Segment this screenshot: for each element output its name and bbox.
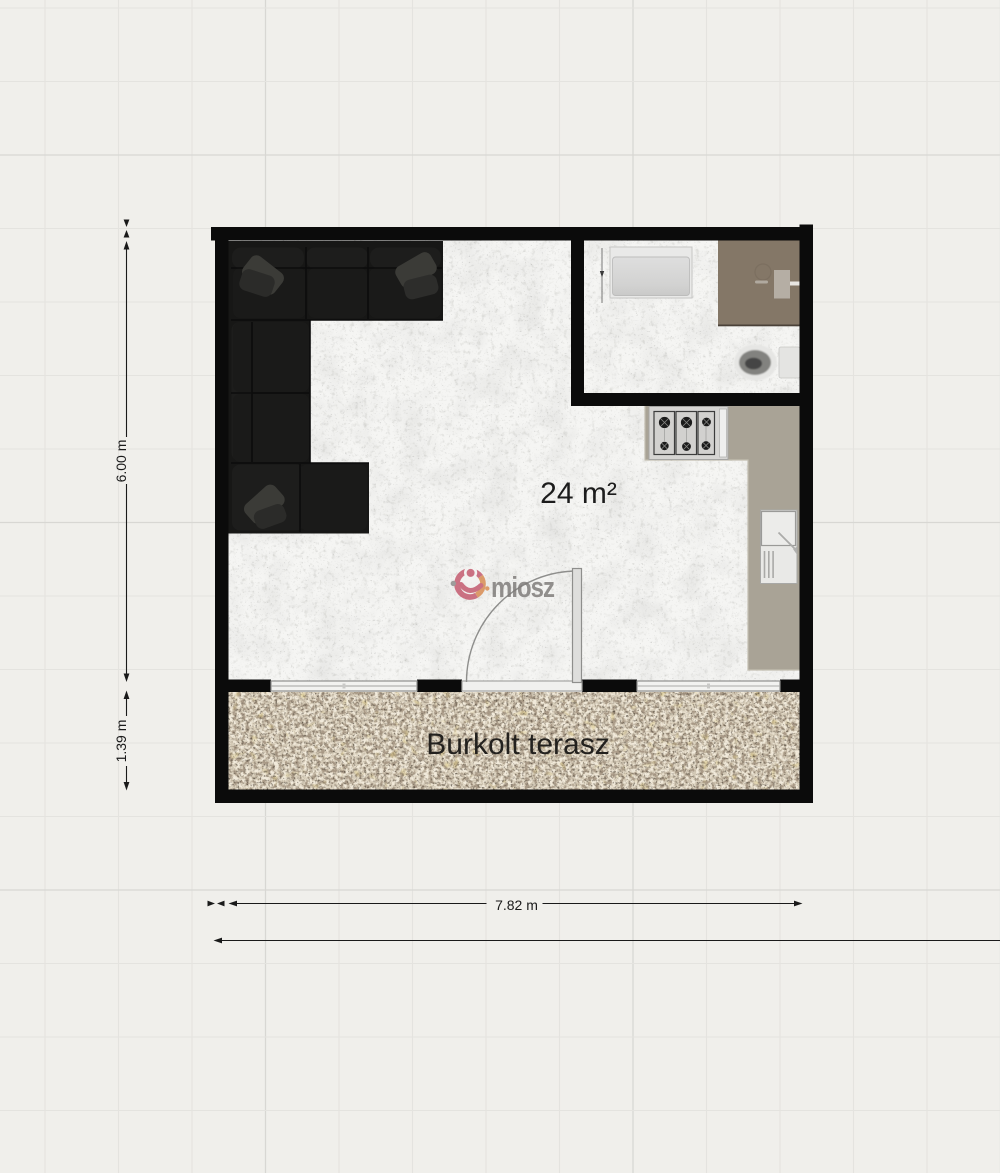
svg-text:1.39 m: 1.39 m <box>113 720 129 763</box>
svg-text:Burkolt terasz: Burkolt terasz <box>426 728 609 761</box>
svg-text:7.82 m: 7.82 m <box>495 897 538 913</box>
svg-text:24 m²: 24 m² <box>540 477 617 510</box>
svg-text:miosz: miosz <box>491 571 555 603</box>
svg-text:6.00 m: 6.00 m <box>113 440 129 483</box>
